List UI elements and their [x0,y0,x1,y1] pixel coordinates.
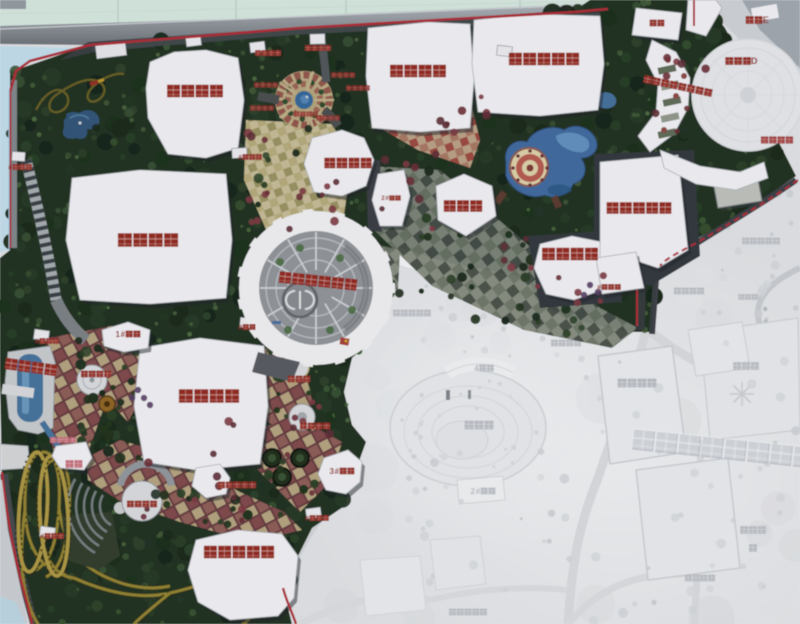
svg-text:#: # [121,330,126,339]
svg-text:#: # [385,195,389,202]
svg-text:D: D [751,56,758,66]
svg-text:#: # [476,487,481,496]
svg-text:#: # [305,515,309,522]
svg-text:#: # [35,338,39,345]
svg-text:#: # [238,154,242,161]
svg-text:#: # [238,324,242,331]
svg-text:#: # [40,533,44,540]
svg-text:E: E [763,15,769,25]
svg-text:#: # [8,164,12,171]
svg-text:#: # [597,284,601,291]
svg-text:#: # [335,467,340,476]
svg-text:4: 4 [474,364,479,373]
